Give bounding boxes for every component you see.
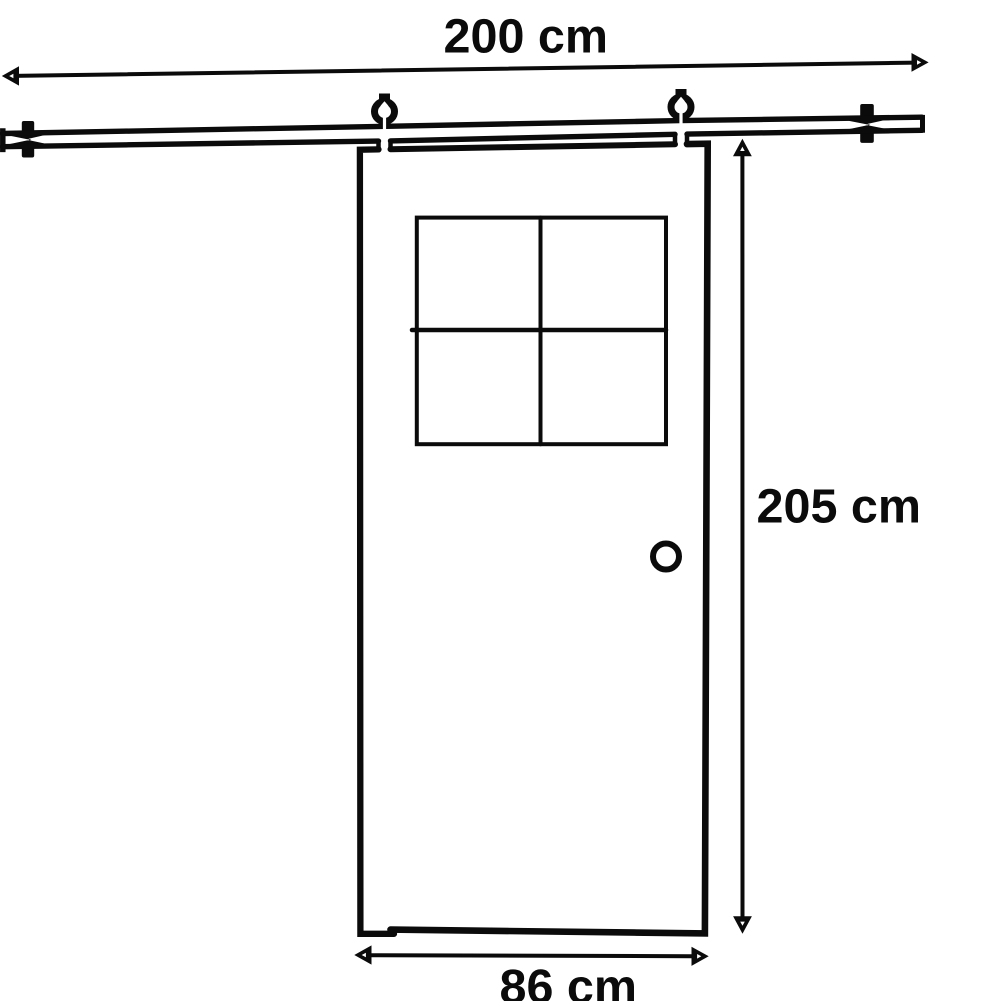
svg-text:205 cm: 205 cm bbox=[757, 480, 922, 534]
svg-text:200 cm: 200 cm bbox=[444, 10, 609, 64]
svg-text:86 cm: 86 cm bbox=[500, 960, 638, 1001]
